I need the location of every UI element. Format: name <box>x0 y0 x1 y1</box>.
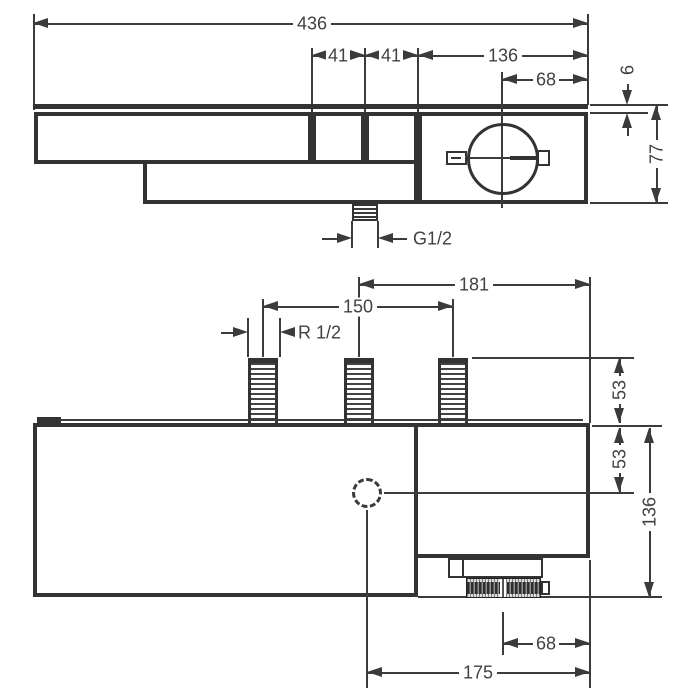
extension-line <box>247 318 249 357</box>
arrowhead <box>503 638 518 648</box>
technical-drawing-canvas: 436 41 41 136 68 6 77 <box>0 0 700 700</box>
dim-outlet-offset-label: 53 <box>611 445 630 473</box>
arrowhead <box>575 667 590 677</box>
knob-right-tab <box>541 581 550 595</box>
arrowhead <box>614 408 624 423</box>
outlet-centerline-horizontal <box>384 492 634 494</box>
dim-inlet-to-edge-label: 181 <box>455 276 493 295</box>
arrowhead <box>263 301 278 311</box>
arrowhead <box>367 667 382 677</box>
inlet-stub-3 <box>438 358 468 424</box>
temperature-knob <box>466 578 541 598</box>
extension-line <box>502 612 504 655</box>
arrowhead <box>644 582 654 597</box>
extension-line <box>589 277 591 423</box>
extension-line <box>358 277 360 357</box>
arrowhead <box>614 428 624 443</box>
knob-center-groove <box>500 579 506 597</box>
dashed-outlet-circle <box>352 478 382 508</box>
body-top-lip <box>58 419 583 421</box>
arrowhead <box>575 638 590 648</box>
body-valve-section <box>418 423 590 558</box>
front-view: 181 150 R 1/2 53 53 <box>0 0 700 700</box>
dim-inlet-thread-label: R 1/2 <box>296 324 343 343</box>
arrowhead <box>280 327 295 337</box>
arrowhead <box>359 279 374 289</box>
inlet-stub-1 <box>248 358 278 424</box>
extension-line <box>592 425 662 427</box>
arrowhead <box>233 327 248 337</box>
dim-outlet-to-edge-label: 175 <box>459 664 497 683</box>
extension-line <box>472 357 634 359</box>
arrowhead <box>575 279 590 289</box>
body-main <box>33 423 418 597</box>
arrowhead <box>614 358 624 373</box>
extension-line <box>279 318 281 357</box>
dim-inlet-spacing-label: 150 <box>339 298 377 317</box>
arrowhead <box>438 301 453 311</box>
outlet-centerline-vertical <box>366 510 368 688</box>
arrowhead <box>644 428 654 443</box>
knob-collar <box>462 558 543 578</box>
dim-total-height-label: 136 <box>641 493 660 531</box>
arrowhead <box>614 477 624 492</box>
inlet-stub-2 <box>344 358 374 424</box>
dim-inlet-height-label: 53 <box>611 376 630 404</box>
dim-knob-offset-label: 68 <box>533 635 559 654</box>
